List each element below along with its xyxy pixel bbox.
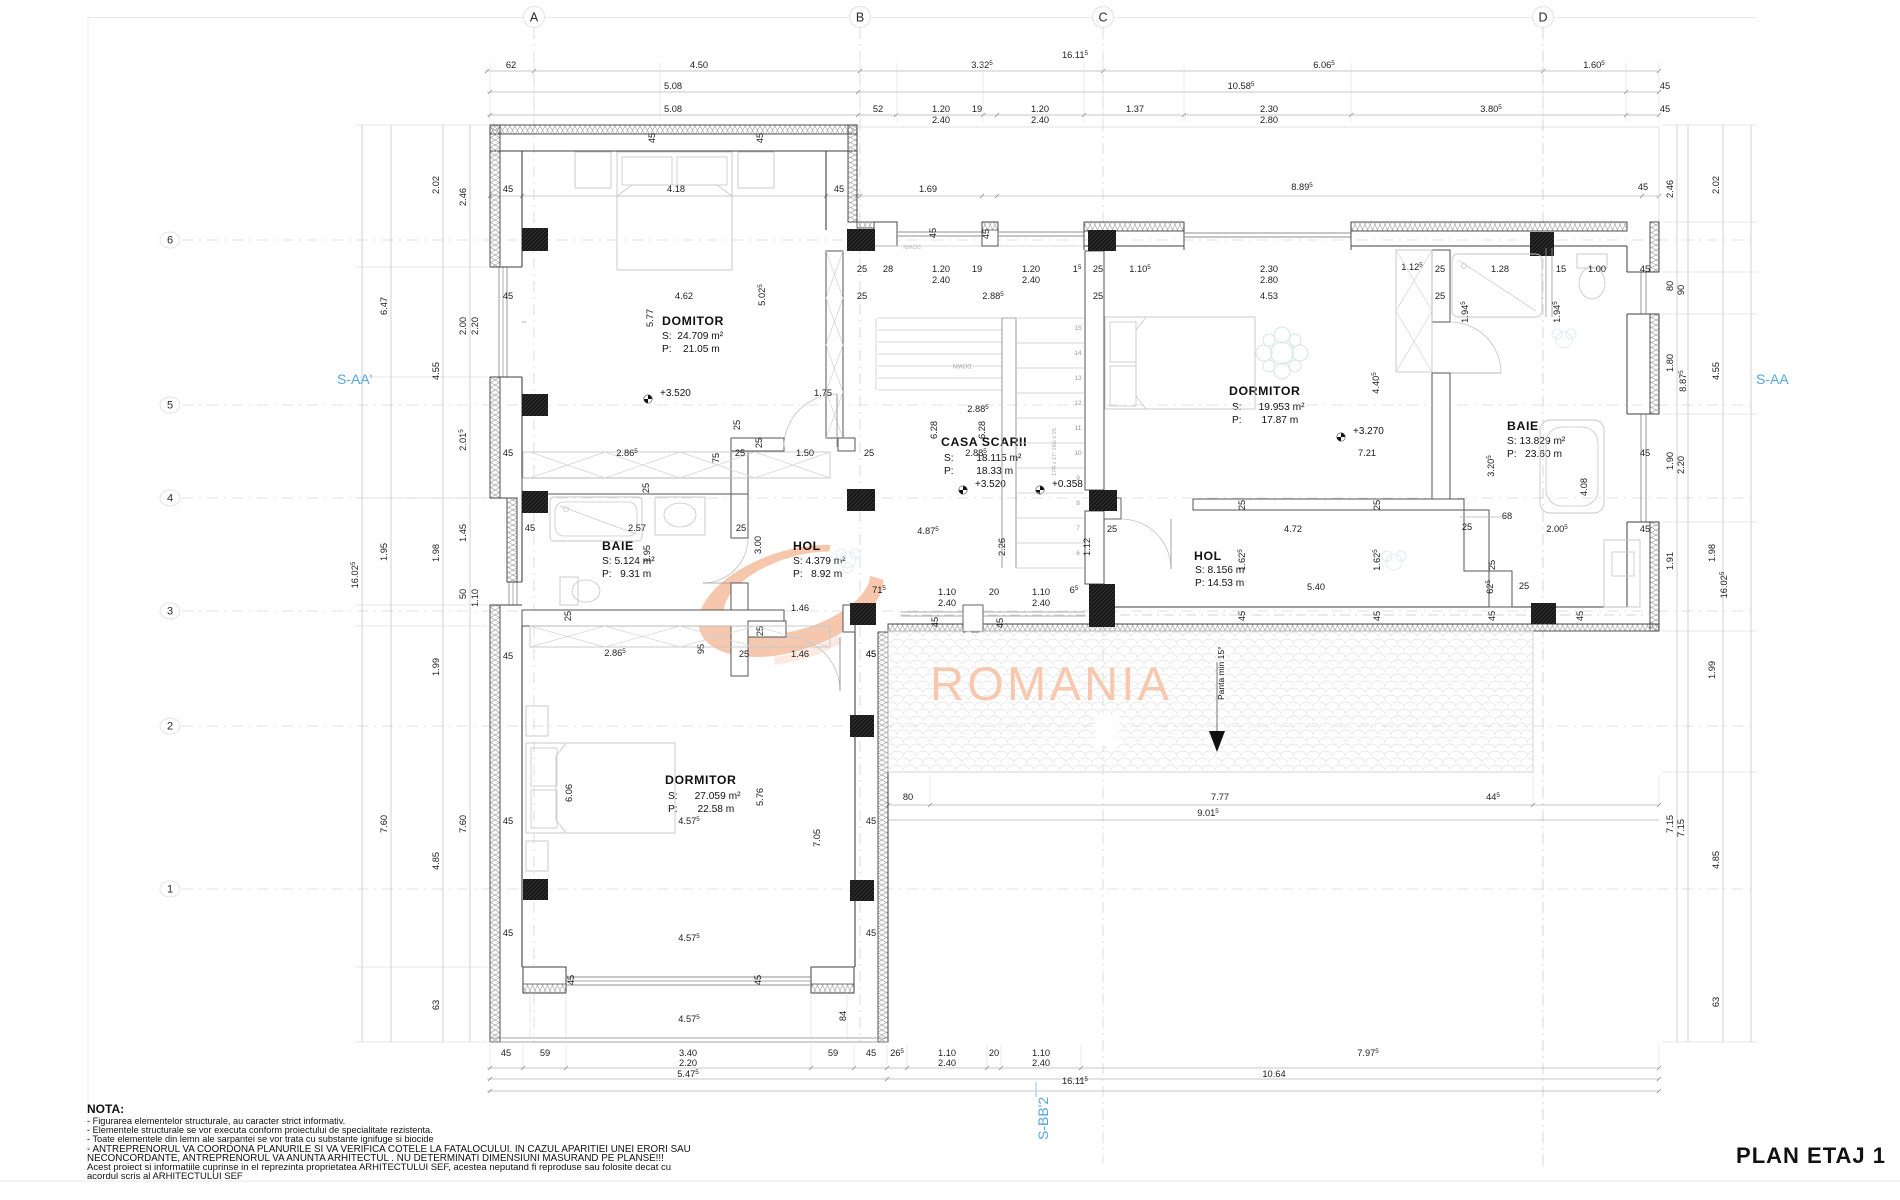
svg-text:45: 45 [1638, 182, 1648, 192]
svg-text:45: 45 [981, 229, 991, 239]
svg-text:1.98: 1.98 [1707, 544, 1717, 562]
svg-text:2.40: 2.40 [1032, 598, 1050, 608]
svg-text:6.28: 6.28 [977, 421, 987, 439]
svg-text:7.15: 7.15 [1665, 815, 1675, 833]
svg-text:2.30: 2.30 [1260, 104, 1278, 114]
svg-text:45: 45 [566, 975, 576, 985]
svg-text:NOTA:: NOTA: [87, 1102, 124, 1116]
svg-text:6: 6 [1076, 550, 1080, 557]
svg-text:P: 23.60 m: P: 23.60 m [1507, 449, 1562, 460]
svg-text:P: 8.92 m: P: 8.92 m [793, 569, 842, 580]
svg-text:45: 45 [1372, 611, 1382, 621]
svg-text:80: 80 [1665, 281, 1675, 291]
svg-text:25: 25 [1487, 560, 1497, 570]
svg-text:2.40: 2.40 [938, 598, 956, 608]
svg-text:B: B [856, 11, 864, 25]
svg-text:2.46: 2.46 [1665, 180, 1675, 198]
svg-text:59: 59 [828, 1048, 838, 1058]
svg-text:- Toate elementele din lemn al: - Toate elementele din lemn ale sarpante… [87, 1134, 434, 1144]
svg-text:1.46: 1.46 [791, 649, 809, 659]
svg-text:25: 25 [732, 420, 742, 430]
svg-text:16.025: 16.025 [350, 561, 360, 588]
svg-text:1.00: 1.00 [1588, 264, 1606, 274]
svg-text:25: 25 [1237, 500, 1247, 510]
svg-text:4.85: 4.85 [1711, 851, 1721, 869]
svg-text:2.40: 2.40 [1032, 1058, 1050, 1068]
svg-text:1.99: 1.99 [431, 658, 441, 676]
svg-text:25: 25 [736, 523, 746, 533]
svg-text:17R x 17¹ 16G x 25: 17R x 17¹ 16G x 25 [1052, 428, 1058, 476]
svg-text:7.60: 7.60 [458, 815, 468, 833]
svg-text:1.90: 1.90 [1665, 452, 1675, 470]
svg-text:S-BB'2: S-BB'2 [1035, 1097, 1051, 1140]
svg-text:45: 45 [1640, 264, 1650, 274]
svg-text:2.40: 2.40 [1031, 115, 1049, 125]
svg-text:5.08: 5.08 [664, 81, 682, 91]
svg-text:1.99: 1.99 [1707, 661, 1717, 679]
svg-text:20: 20 [989, 1048, 999, 1058]
svg-text:6.47: 6.47 [379, 297, 389, 315]
svg-text:5.76: 5.76 [755, 788, 765, 806]
svg-text:45: 45 [503, 651, 513, 661]
svg-text:DOMITOR: DOMITOR [662, 314, 724, 328]
svg-text:45: 45 [1660, 81, 1670, 91]
svg-text:9: 9 [1076, 475, 1080, 482]
svg-text:1.95: 1.95 [642, 545, 652, 563]
svg-text:25: 25 [563, 611, 573, 621]
svg-text:1.10: 1.10 [1032, 1048, 1050, 1058]
svg-text:2.80: 2.80 [1260, 275, 1278, 285]
svg-text:28: 28 [883, 264, 893, 274]
svg-text:15: 15 [1074, 325, 1082, 332]
svg-text:7.15: 7.15 [1676, 819, 1686, 837]
svg-text:63: 63 [1711, 997, 1721, 1007]
svg-text:7.05: 7.05 [812, 829, 822, 847]
svg-text:45: 45 [928, 228, 938, 238]
svg-text:5.08: 5.08 [664, 104, 682, 114]
svg-text:45: 45 [1237, 611, 1247, 621]
svg-text:45: 45 [503, 928, 513, 938]
svg-text:HOL: HOL [1194, 549, 1222, 563]
svg-text:P: 9.31 m: P: 9.31 m [602, 569, 651, 580]
svg-text:3.00: 3.00 [753, 536, 763, 554]
svg-text:2.26: 2.26 [997, 538, 1007, 556]
svg-text:59: 59 [540, 1048, 550, 1058]
svg-text:1.12: 1.12 [1082, 538, 1092, 556]
svg-text:45: 45 [755, 133, 765, 143]
svg-text:A: A [530, 11, 539, 25]
svg-text:1.20: 1.20 [1031, 104, 1049, 114]
svg-text:1.10: 1.10 [1032, 587, 1050, 597]
svg-text:45: 45 [501, 1048, 511, 1058]
svg-text:19: 19 [972, 104, 982, 114]
svg-text:45: 45 [503, 448, 513, 458]
svg-text:S: 24.709 m²: S: 24.709 m² [662, 331, 724, 342]
svg-text:DORMITOR: DORMITOR [665, 773, 737, 787]
svg-text:S: 19.953 m²: S: 19.953 m² [1232, 402, 1305, 413]
svg-text:4: 4 [167, 493, 173, 505]
svg-text:16.025: 16.025 [1719, 571, 1729, 598]
svg-text:1.20: 1.20 [1022, 264, 1040, 274]
svg-text:14: 14 [1074, 350, 1082, 357]
svg-text:6.28: 6.28 [929, 421, 939, 439]
svg-text:4.55: 4.55 [1711, 362, 1721, 380]
svg-text:C: C [1098, 11, 1107, 25]
svg-text:90: 90 [1676, 285, 1686, 295]
svg-text:7: 7 [1076, 525, 1080, 532]
svg-text:25: 25 [1093, 264, 1103, 274]
svg-text:19: 19 [972, 264, 982, 274]
svg-text:5.40: 5.40 [1307, 582, 1325, 592]
svg-text:2.40: 2.40 [938, 1058, 956, 1068]
svg-text:45: 45 [995, 618, 1005, 628]
svg-text:25: 25 [1107, 524, 1117, 534]
svg-text:4.53: 4.53 [1260, 291, 1278, 301]
svg-text:12: 12 [1074, 400, 1082, 407]
svg-text:25: 25 [641, 483, 651, 493]
svg-text:45: 45 [1640, 524, 1650, 534]
svg-text:6: 6 [167, 235, 173, 247]
svg-text:11: 11 [1075, 425, 1082, 432]
svg-text:45: 45 [834, 184, 844, 194]
svg-text:10: 10 [1074, 450, 1082, 457]
svg-text:25: 25 [1435, 291, 1445, 301]
svg-text:15: 15 [1556, 264, 1566, 274]
svg-text:50: 50 [458, 589, 468, 599]
svg-text:1.69: 1.69 [919, 184, 937, 194]
svg-text:DOWN: DOWN [903, 243, 920, 249]
svg-text:1.28: 1.28 [1491, 264, 1509, 274]
svg-text:45: 45 [1575, 611, 1585, 621]
svg-text:6.06: 6.06 [564, 784, 574, 802]
svg-text:1.20: 1.20 [932, 264, 950, 274]
svg-text:25: 25 [1093, 291, 1103, 301]
svg-text:S: 13.829 m²: S: 13.829 m² [1507, 436, 1566, 447]
svg-text:52: 52 [873, 104, 883, 114]
svg-text:1.20: 1.20 [932, 104, 950, 114]
svg-text:95: 95 [696, 644, 706, 654]
svg-text:1.37: 1.37 [1126, 104, 1144, 114]
svg-text:Panta min 15°: Panta min 15° [1216, 647, 1226, 701]
svg-text:7.77: 7.77 [1211, 792, 1229, 802]
svg-text:S-AA: S-AA [1756, 371, 1789, 387]
svg-text:4.85: 4.85 [431, 852, 441, 870]
svg-text:10.64: 10.64 [1262, 1069, 1285, 1079]
svg-text:45: 45 [866, 816, 876, 826]
svg-text:7.21: 7.21 [1358, 448, 1376, 458]
svg-text:7.60: 7.60 [379, 815, 389, 833]
svg-text:+3.270: +3.270 [1353, 426, 1384, 437]
svg-text:2.20: 2.20 [679, 1058, 697, 1068]
svg-text:2.02: 2.02 [431, 176, 441, 194]
svg-text:DORMITOR: DORMITOR [1229, 384, 1301, 398]
svg-text:2.40: 2.40 [932, 115, 950, 125]
svg-text:5.77: 5.77 [645, 309, 655, 327]
svg-text:2.20: 2.20 [1676, 456, 1686, 474]
svg-text:S-AA': S-AA' [337, 371, 372, 387]
svg-text:2.02: 2.02 [1711, 176, 1721, 194]
svg-text:68: 68 [1502, 511, 1512, 521]
svg-text:BAIE: BAIE [1507, 419, 1539, 433]
svg-text:25: 25 [857, 291, 867, 301]
svg-text:5: 5 [167, 400, 173, 412]
svg-text:2.20: 2.20 [470, 317, 480, 335]
svg-text:D: D [1538, 11, 1547, 25]
svg-text:P: 22.58 m: P: 22.58 m [668, 804, 734, 815]
svg-text:PLAN ETAJ 1: PLAN ETAJ 1 [1736, 1143, 1886, 1168]
svg-text:13: 13 [1074, 375, 1082, 382]
svg-text:1.95: 1.95 [379, 543, 389, 561]
svg-text:DOWN: DOWN [953, 362, 972, 368]
svg-text:45: 45 [503, 816, 513, 826]
svg-text:4.62: 4.62 [675, 291, 693, 301]
svg-text:2.80: 2.80 [1260, 115, 1278, 125]
svg-text:4.08: 4.08 [1579, 478, 1589, 496]
svg-text:45: 45 [930, 617, 940, 627]
svg-text:3.40: 3.40 [679, 1048, 697, 1058]
svg-text:45: 45 [503, 184, 513, 194]
svg-text:1.98: 1.98 [431, 544, 441, 562]
svg-text:75: 75 [711, 453, 721, 463]
svg-text:45: 45 [866, 649, 876, 659]
svg-text:P: 18.33 m: P: 18.33 m [944, 466, 1013, 477]
svg-text:1.10: 1.10 [938, 1048, 956, 1058]
svg-text:S: 27.059 m²: S: 27.059 m² [668, 791, 741, 802]
svg-text:3: 3 [167, 606, 173, 618]
svg-text:1.45: 1.45 [458, 524, 468, 542]
svg-text:1.80: 1.80 [1665, 354, 1675, 372]
svg-text:4.55: 4.55 [431, 362, 441, 380]
svg-text:1: 1 [167, 884, 173, 896]
svg-text:45: 45 [866, 1048, 876, 1058]
svg-text:62: 62 [506, 60, 516, 70]
svg-text:25: 25 [864, 448, 874, 458]
svg-text:25: 25 [735, 448, 745, 458]
svg-text:ROMANIA: ROMANIA [930, 657, 1175, 710]
svg-text:25: 25 [857, 264, 867, 274]
svg-text:25: 25 [1435, 264, 1445, 274]
svg-text:8: 8 [1076, 500, 1080, 507]
svg-text:25: 25 [1462, 522, 1472, 532]
svg-text:P: 17.87 m: P: 17.87 m [1232, 415, 1298, 426]
svg-text:25: 25 [1372, 500, 1382, 510]
svg-text:84: 84 [838, 1011, 848, 1021]
svg-text:1.46: 1.46 [791, 603, 809, 613]
svg-text:2.00: 2.00 [458, 317, 468, 335]
svg-text:45: 45 [647, 133, 657, 143]
svg-text:+3.520: +3.520 [660, 388, 691, 399]
svg-text:45: 45 [503, 291, 513, 301]
svg-text:80: 80 [903, 792, 913, 802]
svg-text:25: 25 [739, 649, 749, 659]
svg-text:P: 21.05 m: P: 21.05 m [662, 344, 720, 355]
svg-text:2.57: 2.57 [628, 523, 646, 533]
svg-text:P: 14.53 m: P: 14.53 m [1195, 578, 1244, 589]
svg-text:1.75: 1.75 [814, 388, 832, 398]
svg-text:45: 45 [525, 523, 535, 533]
svg-text:HOL: HOL [793, 539, 821, 553]
svg-text:4.50: 4.50 [690, 60, 708, 70]
svg-text:1.10: 1.10 [470, 589, 480, 607]
svg-text:20: 20 [989, 587, 999, 597]
svg-text:25: 25 [1519, 581, 1529, 591]
svg-text:2: 2 [167, 721, 173, 733]
svg-text:45: 45 [1660, 104, 1670, 114]
svg-text:45: 45 [866, 928, 876, 938]
svg-text:63: 63 [431, 1000, 441, 1010]
svg-text:2.40: 2.40 [932, 275, 950, 285]
svg-text:acordul scris al ARHITECTULUI: acordul scris al ARHITECTULUI SEF [87, 1171, 243, 1182]
svg-text:1.50: 1.50 [796, 448, 814, 458]
svg-text:45: 45 [1487, 611, 1497, 621]
svg-text:10.585: 10.585 [1228, 81, 1255, 91]
svg-text:1.91: 1.91 [1665, 552, 1675, 570]
svg-text:2.30: 2.30 [1260, 264, 1278, 274]
svg-text:1.10: 1.10 [938, 587, 956, 597]
svg-text:45: 45 [1640, 448, 1650, 458]
svg-text:2.40: 2.40 [1022, 275, 1040, 285]
svg-text:4.72: 4.72 [1284, 524, 1302, 534]
svg-text:45: 45 [753, 975, 763, 985]
svg-text:2.46: 2.46 [458, 188, 468, 206]
svg-text:25: 25 [754, 438, 764, 448]
svg-text:4.18: 4.18 [667, 184, 685, 194]
